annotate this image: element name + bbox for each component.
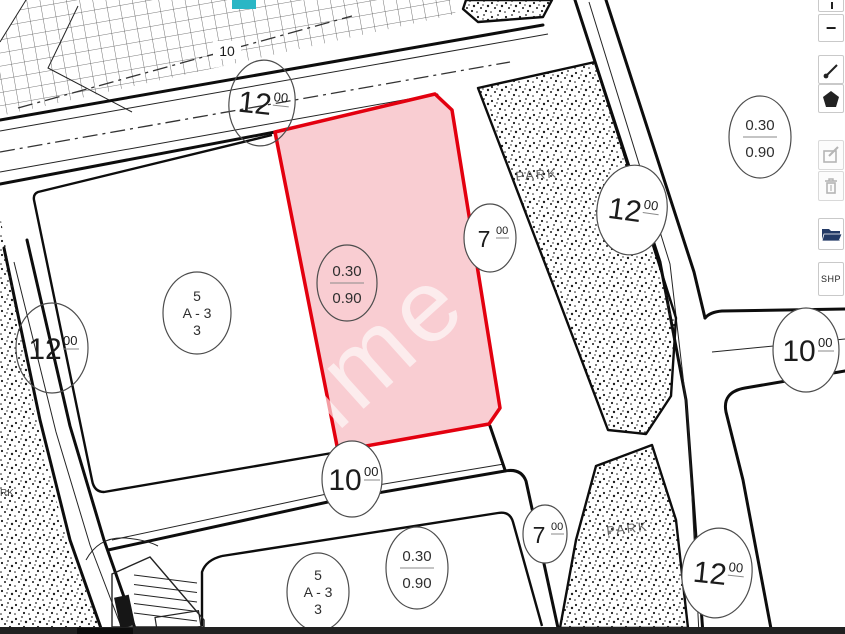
svg-text:5: 5: [193, 288, 201, 304]
svg-text:5: 5: [314, 567, 322, 583]
svg-text:12: 12: [606, 192, 644, 229]
road-label-middle-7: 7 00: [464, 204, 516, 272]
road-label-bottom-10: 10 00: [322, 441, 382, 517]
hatched-area: 10: [0, 0, 456, 116]
folder-icon: [820, 223, 842, 245]
plus-icon: [831, 2, 833, 9]
stipple-island: [463, 0, 552, 22]
svg-text:00: 00: [273, 89, 289, 105]
svg-text:7: 7: [533, 522, 546, 548]
road-label-left: 12 00: [16, 303, 88, 393]
road-label-bottom-7: 7 00: [523, 505, 567, 563]
road-label-east-10: 10 00: [773, 308, 839, 392]
ratio-upper-right: 0.30 0.90: [729, 96, 791, 178]
svg-text:10: 10: [782, 335, 815, 368]
svg-text:00: 00: [728, 559, 744, 575]
svg-text:12: 12: [237, 86, 274, 122]
block-label-lower: 5 A - 3 3: [287, 553, 349, 631]
edit-feature-button[interactable]: [818, 140, 844, 170]
bottom-bar: [0, 627, 845, 634]
minus-icon: −: [826, 19, 837, 37]
svg-text:00: 00: [496, 225, 508, 237]
draw-polygon-button[interactable]: [818, 84, 844, 113]
lower-block-outline: [202, 513, 542, 626]
svg-text:00: 00: [818, 335, 832, 350]
zoom-out-button[interactable]: −: [818, 14, 844, 42]
svg-text:00: 00: [63, 333, 77, 348]
road-label-bottom-right: 12 00: [677, 525, 756, 622]
parking-structure: [86, 538, 204, 633]
svg-text:A - 3: A - 3: [183, 305, 212, 321]
svg-text:00: 00: [551, 521, 563, 533]
open-folder-button[interactable]: [818, 218, 844, 250]
svg-text:0.30: 0.30: [402, 548, 431, 565]
measure-line-button[interactable]: [818, 55, 844, 84]
svg-text:12: 12: [692, 556, 729, 592]
shp-label: SHP: [821, 274, 841, 284]
svg-text:0.90: 0.90: [402, 575, 431, 592]
svg-text:00: 00: [643, 197, 659, 214]
svg-text:7: 7: [478, 226, 491, 252]
delete-feature-button[interactable]: [818, 171, 844, 201]
svg-text:0.30: 0.30: [332, 263, 361, 280]
edit-icon: [820, 144, 842, 166]
svg-text:3: 3: [314, 601, 322, 617]
ratio-lower-block: 0.30 0.90: [386, 527, 448, 609]
line-measure-icon: [820, 59, 842, 81]
cadastral-map[interactable]: 10: [0, 0, 845, 634]
zoom-in-button[interactable]: [818, 0, 844, 12]
block-label-left: 5 A - 3 3: [163, 272, 231, 354]
svg-text:00: 00: [364, 464, 378, 479]
park-left-partial-label: RK: [0, 488, 14, 499]
export-shp-button[interactable]: SHP: [818, 262, 844, 296]
svg-text:0.90: 0.90: [332, 290, 361, 307]
svg-text:3: 3: [193, 322, 201, 338]
map-viewer: 10: [0, 0, 845, 634]
trash-icon: [820, 175, 842, 197]
svg-text:0.30: 0.30: [745, 117, 774, 134]
teal-marker: [232, 0, 256, 9]
hatch-area-label: 10: [219, 43, 235, 59]
svg-text:12: 12: [28, 333, 61, 366]
svg-text:A - 3: A - 3: [304, 584, 333, 600]
svg-text:0.90: 0.90: [745, 144, 774, 161]
polygon-icon: [820, 88, 842, 110]
svg-text:10: 10: [328, 464, 361, 497]
